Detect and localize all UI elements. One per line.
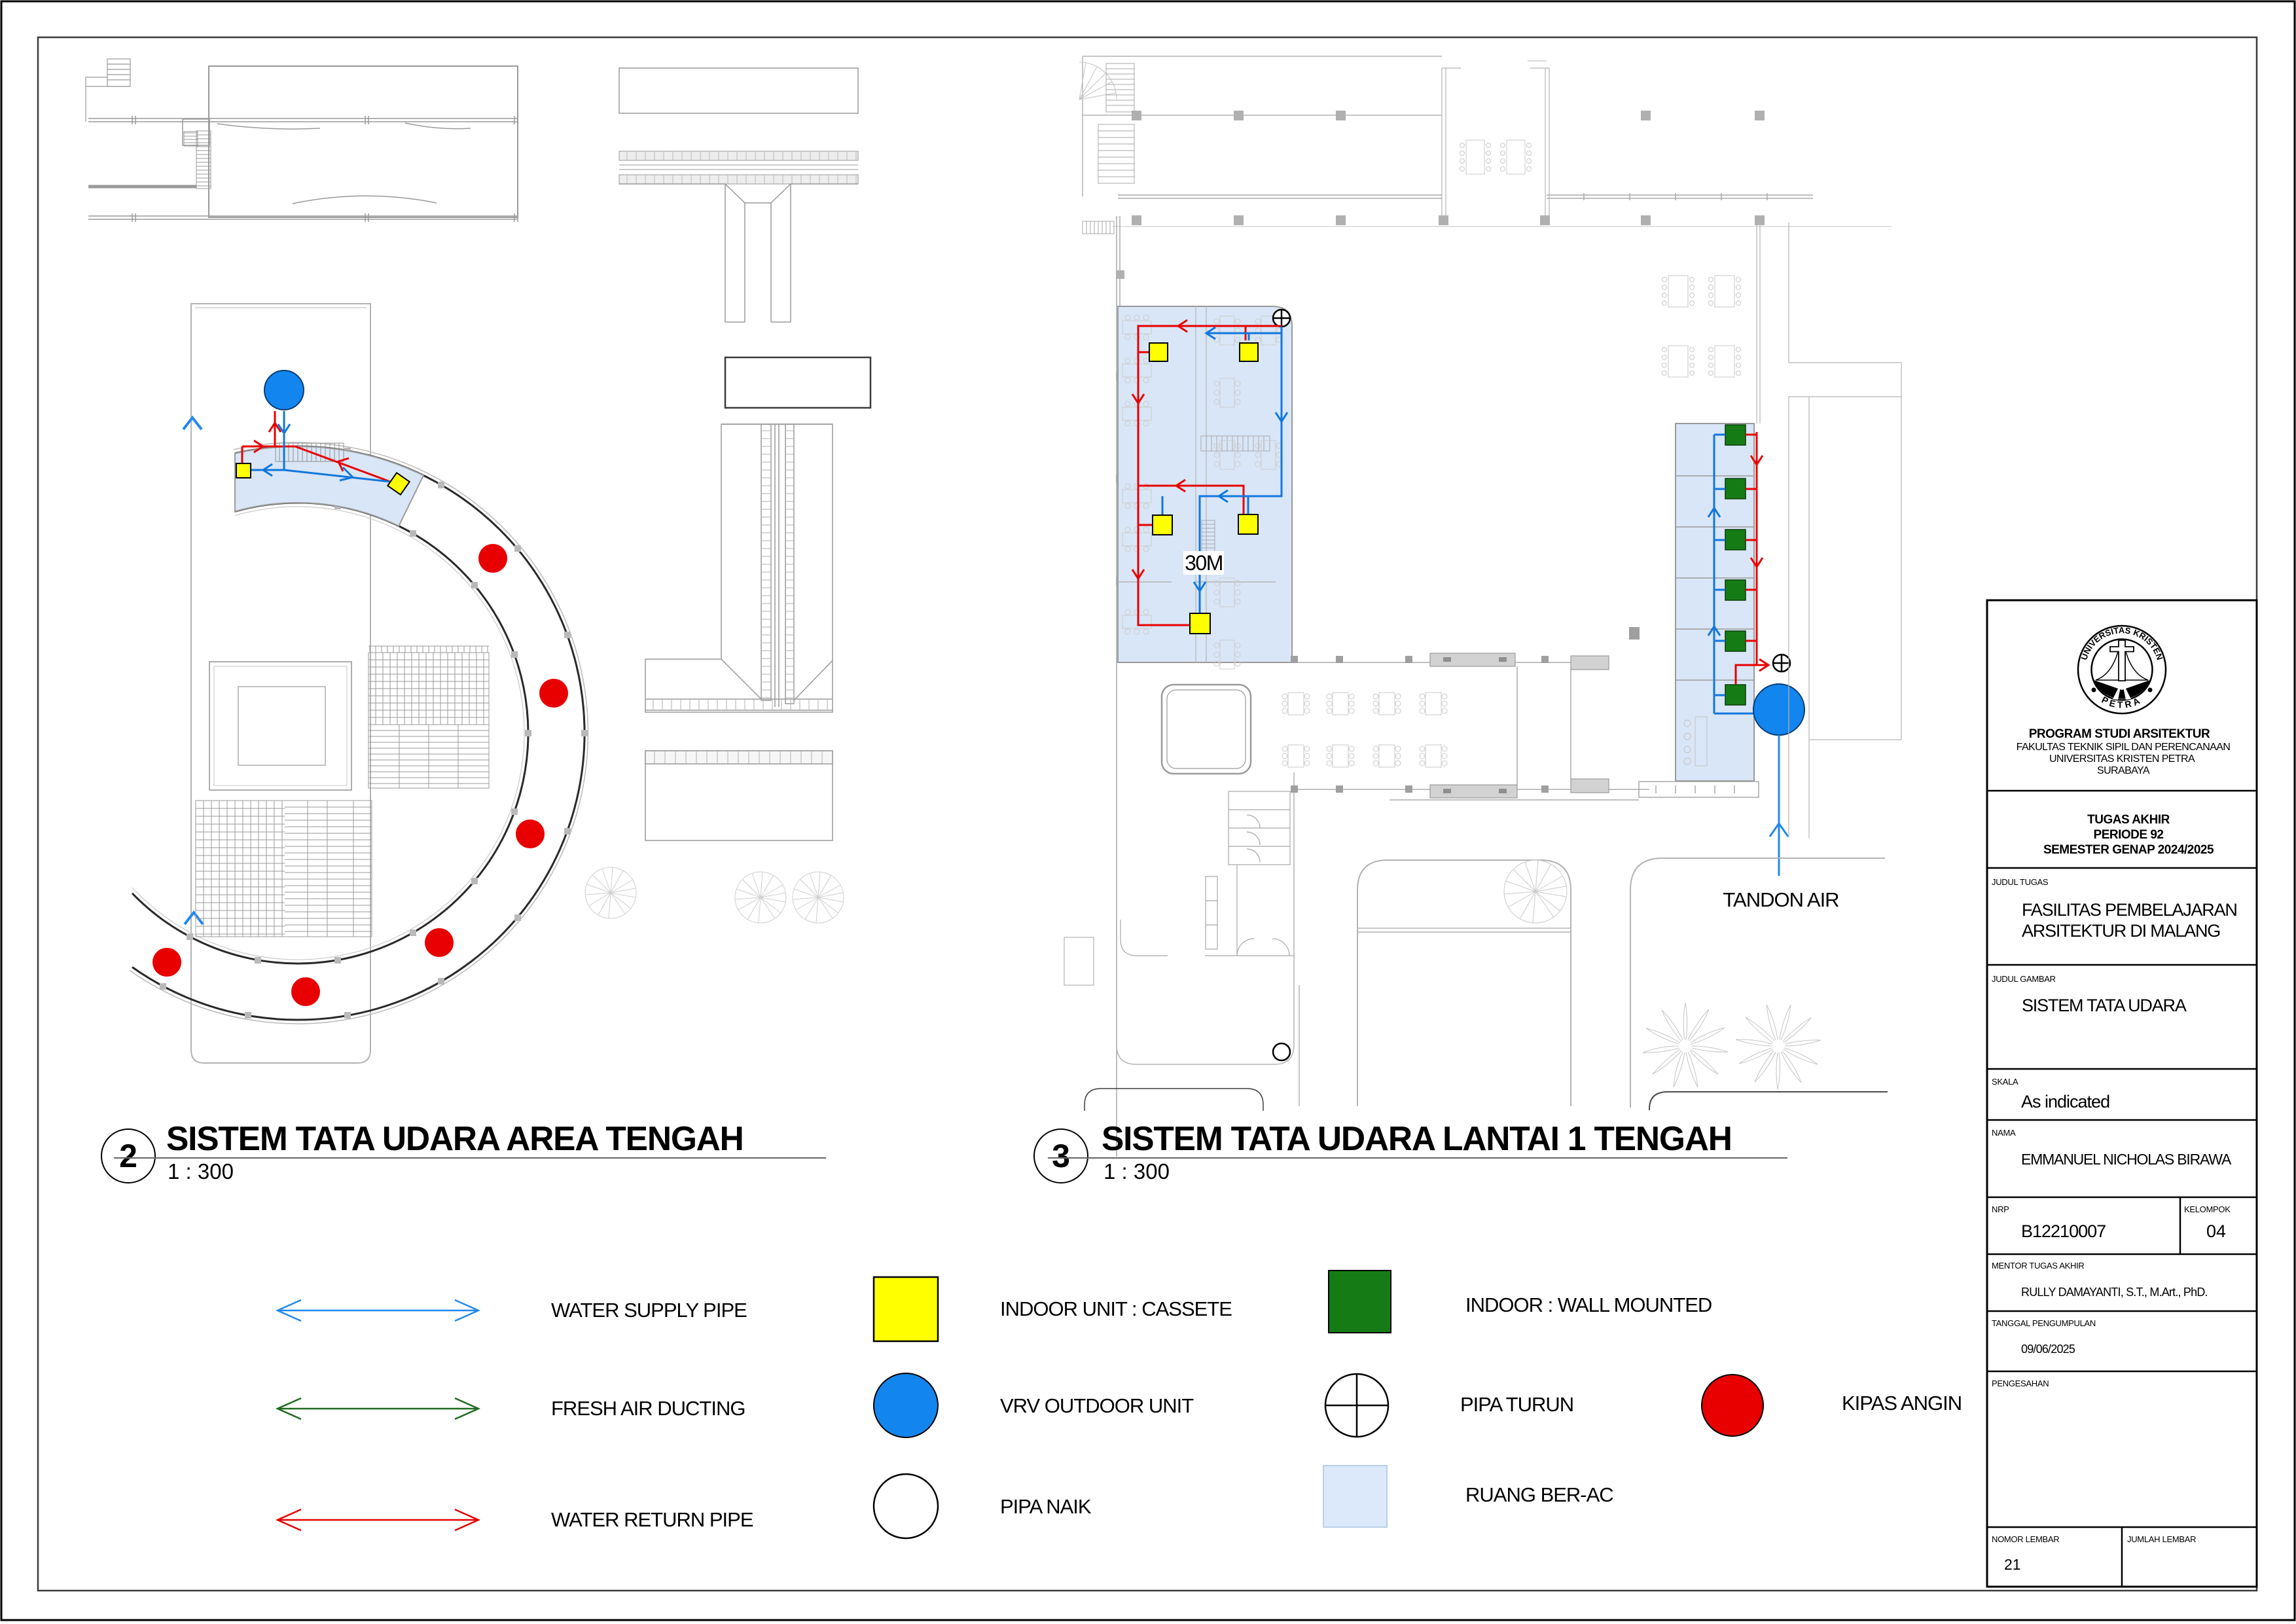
svg-text:09/06/2025: 09/06/2025 — [2021, 1343, 2075, 1356]
svg-text:04: 04 — [2206, 1221, 2226, 1241]
svg-text:PIPA TURUN: PIPA TURUN — [1460, 1393, 1573, 1416]
svg-text:UNIVERSITAS KRISTEN PETRA: UNIVERSITAS KRISTEN PETRA — [2049, 753, 2195, 765]
svg-text:PIPA NAIK: PIPA NAIK — [1000, 1495, 1092, 1518]
svg-text:WATER RETURN PIPE: WATER RETURN PIPE — [551, 1508, 753, 1531]
svg-text:FAKULTAS TEKNIK SIPIL DAN PERE: FAKULTAS TEKNIK SIPIL DAN PERENCANAAN — [2017, 742, 2231, 753]
svg-text:NRP: NRP — [1992, 1204, 2009, 1214]
svg-text:TANGGAL PENGUMPULAN: TANGGAL PENGUMPULAN — [1992, 1318, 2096, 1328]
svg-text:SISTEM TATA UDARA: SISTEM TATA UDARA — [2022, 996, 2187, 1015]
svg-text:MENTOR TUGAS AKHIR: MENTOR TUGAS AKHIR — [1992, 1261, 2084, 1271]
svg-text:JUMLAH LEMBAR: JUMLAH LEMBAR — [2127, 1534, 2196, 1544]
svg-text:FASILITAS PEMBELAJARAN: FASILITAS PEMBELAJARAN — [2022, 900, 2237, 920]
svg-text:FRESH AIR DUCTING: FRESH AIR DUCTING — [551, 1397, 745, 1420]
svg-text:TANDON AIR: TANDON AIR — [1723, 888, 1839, 911]
svg-text:RULLY DAMAYANTI, S.T., M.Art.,: RULLY DAMAYANTI, S.T., M.Art., PhD. — [2021, 1286, 2208, 1299]
svg-text:TUGAS AKHIR: TUGAS AKHIR — [2087, 813, 2170, 827]
svg-text:1 : 300: 1 : 300 — [168, 1159, 234, 1183]
svg-text:KELOMPOK: KELOMPOK — [2184, 1204, 2231, 1214]
svg-text:ARSITEKTUR DI MALANG: ARSITEKTUR DI MALANG — [2022, 921, 2220, 941]
svg-text:PENGESAHAN: PENGESAHAN — [1992, 1379, 2049, 1388]
svg-text:B12210007: B12210007 — [2021, 1221, 2106, 1241]
svg-text:EMMANUEL NICHOLAS BIRAWA: EMMANUEL NICHOLAS BIRAWA — [2021, 1151, 2232, 1168]
svg-text:SKALA: SKALA — [1992, 1077, 2018, 1087]
svg-text:VRV OUTDOOR UNIT: VRV OUTDOOR UNIT — [1000, 1394, 1194, 1417]
svg-text:WATER SUPPLY PIPE: WATER SUPPLY PIPE — [551, 1299, 747, 1322]
svg-text:JUDUL TUGAS: JUDUL TUGAS — [1992, 877, 2049, 887]
svg-text:1 : 300: 1 : 300 — [1103, 1159, 1170, 1183]
svg-text:As indicated: As indicated — [2021, 1092, 2109, 1111]
svg-text:SISTEM TATA UDARA AREA TENGAH: SISTEM TATA UDARA AREA TENGAH — [166, 1119, 744, 1157]
svg-text:KIPAS ANGIN: KIPAS ANGIN — [1842, 1392, 1962, 1415]
svg-text:NAMA: NAMA — [1992, 1128, 2016, 1138]
svg-text:30M: 30M — [1185, 551, 1223, 575]
svg-text:SURABAYA: SURABAYA — [2097, 765, 2150, 776]
svg-text:JUDUL GAMBAR: JUDUL GAMBAR — [1992, 974, 2056, 984]
svg-text:SEMESTER GENAP 2024/2025: SEMESTER GENAP 2024/2025 — [2043, 843, 2214, 857]
svg-text:21: 21 — [2004, 1556, 2021, 1573]
svg-text:INDOOR : WALL MOUNTED: INDOOR : WALL MOUNTED — [1465, 1293, 1712, 1316]
svg-text:3: 3 — [1052, 1138, 1070, 1174]
svg-text:2: 2 — [119, 1138, 137, 1174]
svg-text:NOMOR LEMBAR: NOMOR LEMBAR — [1992, 1534, 2059, 1544]
svg-text:PROGRAM STUDI ARSITEKTUR: PROGRAM STUDI ARSITEKTUR — [2029, 727, 2210, 741]
svg-text:SISTEM TATA UDARA LANTAI 1 TEN: SISTEM TATA UDARA LANTAI 1 TENGAH — [1102, 1119, 1732, 1157]
svg-text:RUANG BER-AC: RUANG BER-AC — [1465, 1483, 1613, 1506]
svg-text:PERIODE 92: PERIODE 92 — [2094, 828, 2164, 842]
svg-text:INDOOR UNIT : CASSETE: INDOOR UNIT : CASSETE — [1000, 1297, 1232, 1320]
